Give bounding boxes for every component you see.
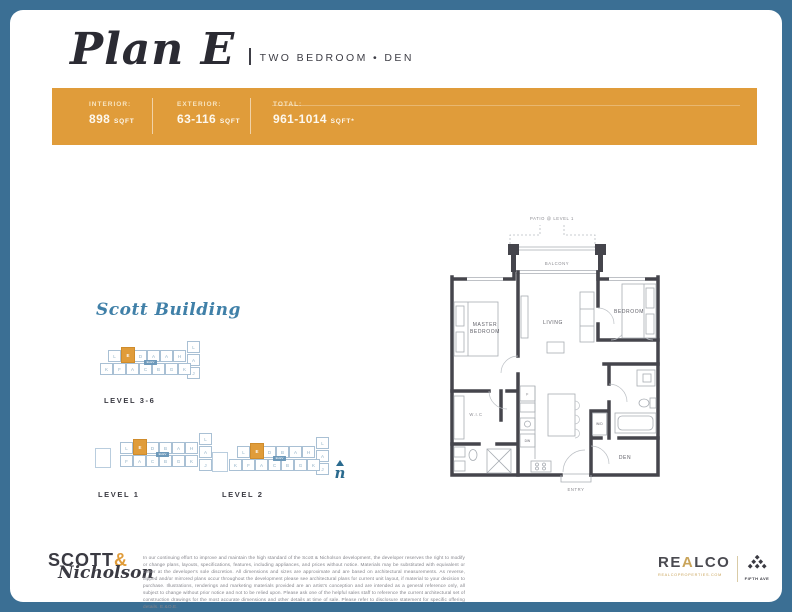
den: DEN <box>619 455 631 461</box>
fifth-ave-label: FIFTH AVE <box>744 576 770 581</box>
footer-logo-divider <box>737 556 738 582</box>
keyplan-diagram: LEDBAHLAJKFACBGKELEV <box>227 440 337 480</box>
keyplan-unit: K <box>229 459 242 471</box>
fifth-ave-logo: FIFTH AVE <box>744 555 770 581</box>
wd-label: W/D <box>596 422 603 426</box>
elevator-badge: ELEV <box>156 452 169 457</box>
level-label: LEVEL 2 <box>222 490 264 499</box>
svg-text:BEDROOM: BEDROOM <box>470 329 500 335</box>
entry: ENTRY <box>561 474 591 492</box>
wic-label: W.I.C <box>469 412 482 417</box>
keyplan-annex <box>212 452 228 472</box>
den-label: DEN <box>619 455 631 461</box>
scott-nicholson-logo: SCOTT& Nicholson <box>48 551 143 582</box>
keyplan-unit: G <box>165 363 178 375</box>
keyplan-unit: K <box>185 455 198 467</box>
keyplan-unit: J <box>199 459 212 471</box>
keyplan-unit: K <box>178 363 191 375</box>
keyplan-unit: H <box>302 446 315 458</box>
floorplan-drawing: PATIO @ LEVEL 1 BALCONY <box>441 206 673 498</box>
stat-divider <box>250 98 251 134</box>
title-divider <box>249 48 251 65</box>
keyplan-annex <box>95 448 111 468</box>
stat-exterior: EXTERIOR: 63-116 SQFT <box>177 101 240 126</box>
patio-outline: PATIO @ LEVEL 1 <box>510 216 595 248</box>
keyplan-unit: F <box>242 459 255 471</box>
keyplan-unit: K <box>100 363 113 375</box>
level-label: LEVEL 3-6 <box>104 396 155 405</box>
fifth-ave-triangle-icon <box>745 555 769 570</box>
living-label: LIVING <box>543 320 563 326</box>
elevator-badge: ELEV <box>144 360 157 365</box>
north-label: n <box>330 466 350 481</box>
keyplan-unit-highlight: E <box>250 443 264 459</box>
dw-label: DW <box>525 439 531 443</box>
keyplan-unit: L <box>187 341 200 353</box>
keyplan-unit: A <box>160 350 173 362</box>
stat-value: 898 SQFT <box>89 112 135 126</box>
keyplan-diagram: LEDAAHLAJKFACBGKELEV <box>98 344 208 384</box>
stat-value: 961-1014 SQFT* <box>273 112 355 126</box>
bathroom <box>615 370 656 433</box>
wic: W.I.C <box>454 396 483 439</box>
brochure-page: { "header": { "title": "Plan E", "subtit… <box>0 0 792 612</box>
realco-url: REALCOPROPERTIES.COM <box>658 573 732 577</box>
stat-value: 63-116 SQFT <box>177 112 240 126</box>
keyplan-unit: L <box>316 437 329 449</box>
master-bedroom-label: MASTER <box>473 322 497 328</box>
stat-label: INTERIOR: <box>89 101 135 108</box>
kitchen: F DW <box>520 386 580 472</box>
washer-dryer: W/D <box>593 413 607 435</box>
master-bath <box>454 447 511 473</box>
entry-label: ENTRY <box>567 487 584 492</box>
keyplan-unit: A <box>126 363 139 375</box>
banner-accent-line <box>272 105 740 106</box>
keyplan-level-2: LEDBAHLAJKFACBGKELEV LEVEL 2 <box>227 440 337 480</box>
keyplan-unit-highlight: E <box>121 347 135 363</box>
stat-divider <box>152 98 153 134</box>
keyplan-unit: L <box>120 442 133 454</box>
keyplan-unit: A <box>133 455 146 467</box>
keyplan-unit-highlight: E <box>133 439 147 455</box>
keyplan-unit: H <box>173 350 186 362</box>
keyplan-unit: A <box>172 442 185 454</box>
balcony: BALCONY <box>508 244 606 274</box>
realco-wordmark: REALCO <box>658 555 732 570</box>
stat-interior: INTERIOR: 898 SQFT <box>89 101 135 126</box>
plan-header: Plan E TWO BEDROOM • DEN <box>70 28 414 72</box>
keyplan-unit: L <box>237 446 250 458</box>
master-bedroom: MASTER BEDROOM <box>454 302 500 356</box>
keyplan-level-1: LEDBAHLAJFACBGKELEV LEVEL 1 <box>110 436 220 476</box>
living-room: LIVING <box>521 292 594 353</box>
level-label: LEVEL 1 <box>98 490 140 499</box>
realco-logo: REALCO REALCOPROPERTIES.COM <box>658 555 732 577</box>
north-indicator: n <box>330 460 350 481</box>
keyplan-diagram: LEDBAHLAJFACBGKELEV <box>110 436 220 476</box>
keyplan-unit: G <box>294 459 307 471</box>
brand-script: Nicholson <box>58 565 143 582</box>
keyplan-unit: A <box>289 446 302 458</box>
keyplan-unit: L <box>108 350 121 362</box>
stats-banner: INTERIOR: 898 SQFT EXTERIOR: 63-116 SQFT… <box>52 88 757 145</box>
plan-title: Plan E <box>70 28 235 72</box>
keyplan-unit: H <box>185 442 198 454</box>
keyplan-unit: A <box>199 446 212 458</box>
bedroom: BEDROOM <box>614 284 656 338</box>
elevator-badge: ELEV <box>273 456 286 461</box>
balcony-label: BALCONY <box>545 261 569 266</box>
building-name: Scott Building <box>96 300 241 320</box>
keyplan-unit: L <box>199 433 212 445</box>
plan-subtitle: TWO BEDROOM • DEN <box>260 52 414 64</box>
fridge-label: F <box>526 393 528 397</box>
bedroom-label: BEDROOM <box>614 309 644 315</box>
keyplan-unit: F <box>113 363 126 375</box>
keyplan-unit: F <box>120 455 133 467</box>
patio-label: PATIO @ LEVEL 1 <box>530 216 574 221</box>
stat-label: EXTERIOR: <box>177 101 240 108</box>
keyplan-unit: A <box>255 459 268 471</box>
keyplan-unit: K <box>307 459 320 471</box>
keyplan-unit: G <box>172 455 185 467</box>
keyplan-level-3-6: LEDAAHLAJKFACBGKELEV LEVEL 3-6 <box>98 344 208 384</box>
content-sheet: Plan E TWO BEDROOM • DEN INTERIOR: 898 S… <box>10 10 782 602</box>
legal-disclaimer: In our continuing effort to improve and … <box>143 554 465 610</box>
